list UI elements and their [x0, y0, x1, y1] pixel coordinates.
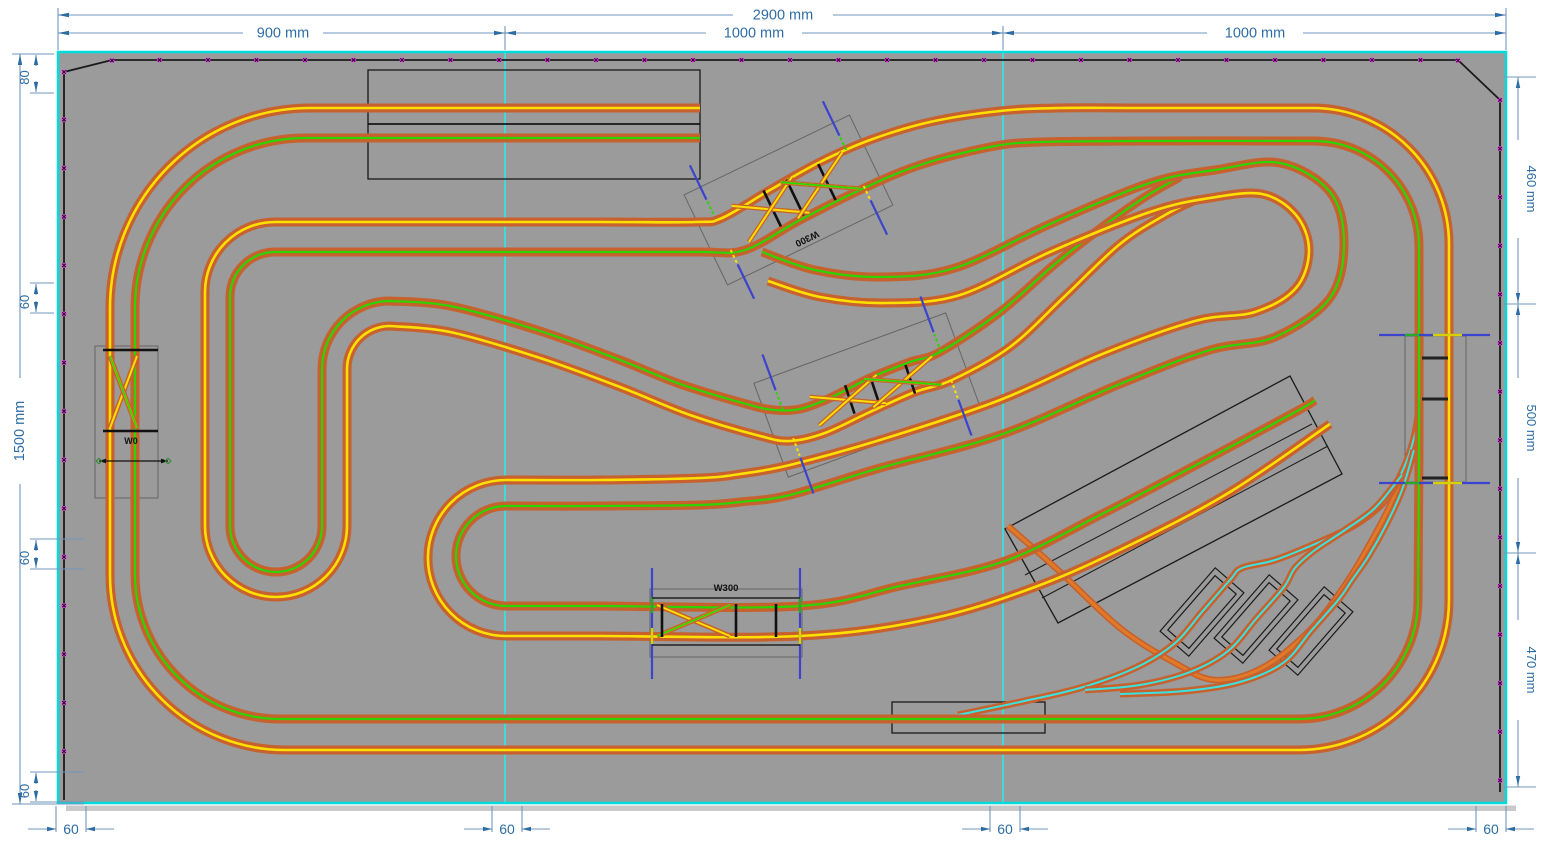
svg-text:460 mm: 460 mm [1524, 166, 1539, 213]
svg-text:60: 60 [1483, 821, 1499, 837]
svg-text:60: 60 [499, 821, 515, 837]
svg-text:W300: W300 [714, 583, 739, 594]
svg-text:60: 60 [63, 821, 79, 837]
svg-text:60: 60 [17, 295, 32, 309]
svg-text:60: 60 [17, 784, 32, 798]
svg-text:80: 80 [17, 70, 32, 84]
svg-text:1000 mm: 1000 mm [1225, 26, 1285, 42]
svg-text:470 mm: 470 mm [1524, 647, 1539, 694]
svg-text:60: 60 [997, 821, 1013, 837]
svg-text:500 mm: 500 mm [1524, 405, 1539, 452]
svg-text:1000 mm: 1000 mm [724, 26, 784, 42]
svg-text:2900 mm: 2900 mm [753, 8, 813, 24]
svg-text:W0: W0 [124, 436, 138, 446]
svg-text:1500 mm: 1500 mm [12, 401, 28, 461]
svg-text:60: 60 [17, 551, 32, 565]
svg-text:900 mm: 900 mm [257, 26, 309, 42]
